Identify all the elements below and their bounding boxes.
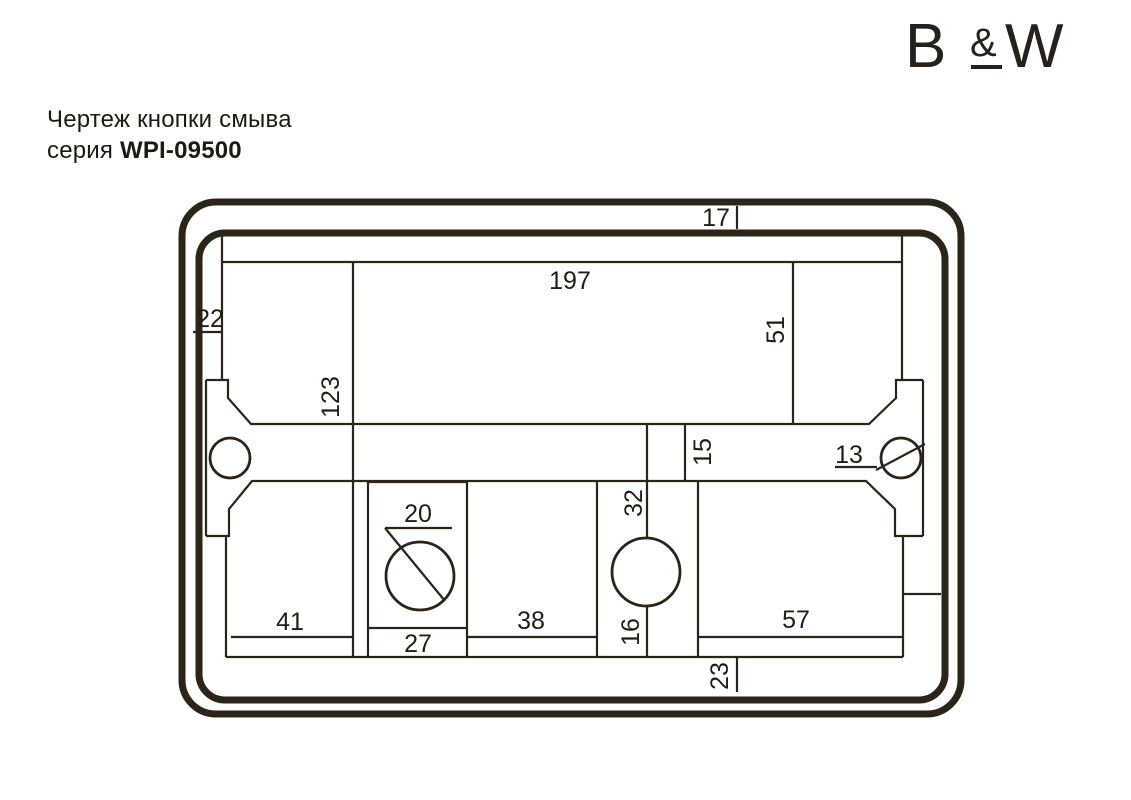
dim-label-57: 57: [782, 606, 810, 634]
dim-label-16: 16: [617, 618, 645, 646]
dim-label-17: 17: [702, 204, 730, 232]
dim-label-197: 197: [549, 267, 591, 295]
screw-hole-left: [210, 438, 250, 478]
leader-20-slash: [385, 528, 445, 601]
flush-button-drawing: 197 17 22 51 123 15 13 32 20 41 27 38 16…: [0, 0, 1131, 800]
crossbar-bottom-edge: [206, 481, 923, 536]
dim-label-41: 41: [276, 608, 304, 636]
dim-label-15: 15: [689, 438, 717, 466]
dim-label-27: 27: [404, 630, 432, 658]
dim-label-51: 51: [762, 316, 790, 344]
inner-frame: [199, 233, 945, 700]
dim-label-13: 13: [835, 441, 863, 469]
crossbar-top-edge: [206, 380, 923, 424]
button-circle-right: [612, 538, 680, 606]
dim-label-23: 23: [706, 662, 734, 690]
screw-hole-right: [881, 438, 921, 478]
dimension-labels: 197 17 22 51 123 15 13 32 20 41 27 38 16…: [196, 204, 863, 690]
dim-label-38: 38: [517, 607, 545, 635]
page: Чертеж кнопки смыва серия WPI-09500 B & …: [0, 0, 1131, 800]
dim-label-123: 123: [317, 376, 345, 418]
dim-label-32: 32: [620, 489, 648, 517]
dim-label-20: 20: [404, 500, 432, 528]
plate-outline: [206, 235, 941, 657]
dim-label-22: 22: [196, 305, 224, 333]
